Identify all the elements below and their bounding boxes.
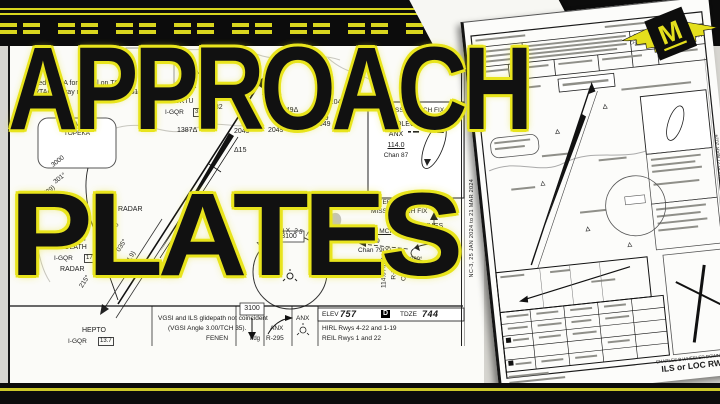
winged-m-logo: M <box>620 0 720 72</box>
runway-edge-line <box>0 13 438 15</box>
profile-altitude: 3100 <box>240 305 264 313</box>
hepto-dme: 13.7 <box>98 337 114 346</box>
tdze-value: 744 <box>422 309 439 319</box>
anx-label-2: ANX <box>296 315 309 322</box>
right-profile-minima <box>496 249 720 372</box>
channel-logo: M <box>620 0 720 72</box>
tdze-label: TDZE <box>400 311 417 318</box>
thumbnail-canvas: { "colors": { "accent_yellow": "#e8e41c"… <box>0 0 720 404</box>
fenen-fix: FENEN <box>206 335 228 342</box>
hepto-navaid: I-GQR <box>68 338 87 345</box>
title-line-plates: PLATES <box>10 176 458 294</box>
lighting-note-1: HIRL Rwys 4-22 and 1-19 <box>322 325 397 332</box>
hdg-label: hdg <box>250 336 260 343</box>
lighting-note-2: REIL Rwys 1 and 22 <box>322 335 381 342</box>
tdz-symbol: D <box>381 310 390 318</box>
elev-label: ELEV <box>322 311 339 318</box>
elev-value: 757 <box>340 309 357 319</box>
hepto-fix: HEPTO <box>82 327 106 335</box>
anx-radial-label: R-295 <box>266 335 284 342</box>
runway-edge-line <box>0 8 438 10</box>
vgsi-note-line2: (VGSI Angle 3.00/TCH 35). <box>168 325 246 332</box>
vgsi-note-line1: VGSI and ILS glidepath not coincident <box>158 315 268 322</box>
anx-label: ANX <box>270 325 283 332</box>
title-line-approach: APPROACH <box>8 30 529 148</box>
runway-stripe-bar-bottom <box>0 383 720 404</box>
runway-edge-line <box>0 388 720 391</box>
